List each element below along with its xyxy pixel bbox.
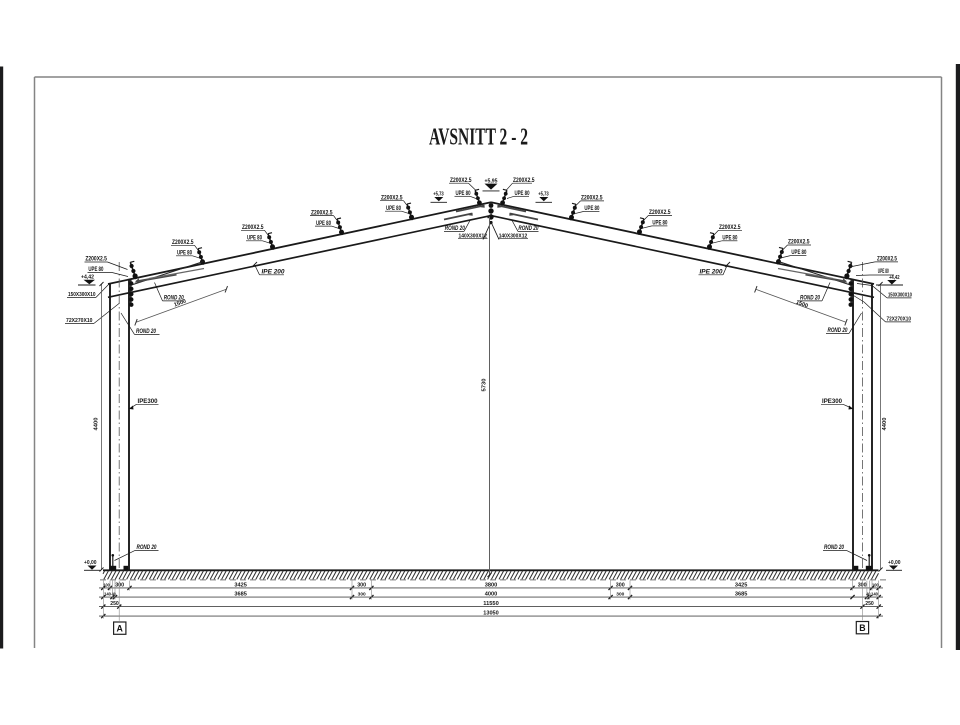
svg-text:300: 300 (616, 583, 625, 589)
svg-text:140: 140 (104, 592, 112, 597)
svg-text:3425: 3425 (234, 583, 247, 589)
svg-text:ROND 20: ROND 20 (800, 295, 820, 302)
svg-text:300: 300 (616, 592, 624, 597)
svg-text:13050: 13050 (483, 611, 499, 617)
svg-text:ROND 20: ROND 20 (828, 327, 848, 334)
svg-text:+5,95: +5,95 (485, 178, 498, 184)
svg-text:AVSNITT 2 - 2: AVSNITT 2 - 2 (429, 125, 528, 151)
svg-text:3685: 3685 (735, 592, 748, 598)
svg-text:300: 300 (357, 583, 366, 589)
svg-text:+0,00: +0,00 (84, 560, 97, 566)
svg-text:100: 100 (103, 583, 110, 588)
svg-text:B: B (859, 623, 865, 633)
svg-text:3425: 3425 (735, 583, 748, 589)
svg-text:UPE 80: UPE 80 (88, 266, 103, 273)
svg-text:Z200X2.5: Z200X2.5 (877, 256, 897, 263)
svg-text:100: 100 (872, 583, 879, 588)
svg-text:300: 300 (358, 592, 366, 597)
svg-text:11550: 11550 (483, 601, 499, 607)
svg-text:ROND 20: ROND 20 (518, 225, 538, 232)
svg-text:IPE300: IPE300 (822, 399, 843, 405)
svg-text:4000: 4000 (485, 592, 498, 598)
svg-text:UPE 80: UPE 80 (878, 268, 889, 275)
svg-text:250: 250 (110, 601, 119, 607)
svg-text:300: 300 (115, 583, 124, 589)
svg-text:IPE 200: IPE 200 (262, 268, 286, 275)
svg-text:140: 140 (871, 592, 879, 597)
svg-text:Z200X2.5: Z200X2.5 (513, 177, 535, 184)
svg-text:+5,73: +5,73 (538, 192, 549, 198)
svg-text:4400: 4400 (94, 418, 100, 431)
svg-text:5730: 5730 (481, 379, 487, 392)
svg-text:ROND 20: ROND 20 (137, 544, 157, 551)
svg-text:4400: 4400 (882, 418, 888, 431)
svg-text:250: 250 (865, 601, 874, 607)
svg-text:+0,00: +0,00 (888, 560, 901, 566)
svg-text:A: A (117, 624, 124, 634)
svg-text:IPE300: IPE300 (138, 399, 159, 405)
svg-text:ROND 20: ROND 20 (445, 225, 465, 232)
svg-text:3685: 3685 (234, 592, 247, 598)
svg-text:ROND 20: ROND 20 (136, 328, 156, 335)
svg-text:+5,73: +5,73 (433, 192, 444, 198)
svg-text:3800: 3800 (485, 583, 498, 589)
svg-text:Z200X2.5: Z200X2.5 (450, 177, 472, 184)
svg-text:ROND 20: ROND 20 (824, 544, 844, 551)
svg-text:IPE 200: IPE 200 (700, 268, 724, 275)
